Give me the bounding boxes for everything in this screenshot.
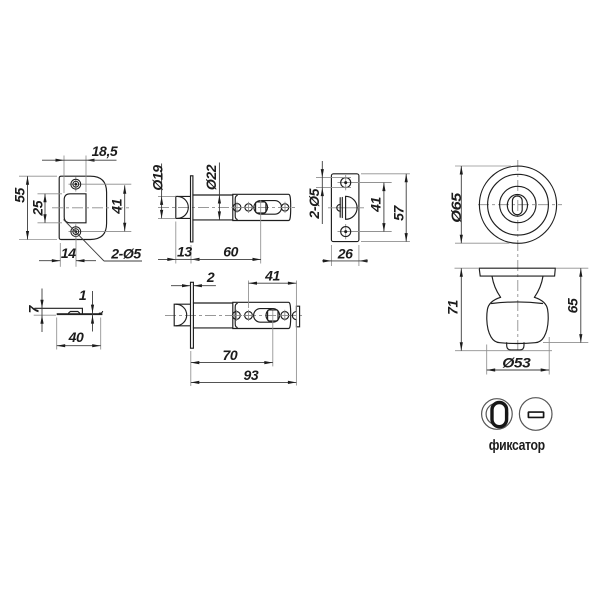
svg-text:Ø65: Ø65 — [448, 193, 464, 223]
svg-text:26: 26 — [337, 246, 353, 262]
svg-text:2: 2 — [206, 269, 215, 285]
svg-text:14: 14 — [61, 245, 76, 261]
svg-text:7: 7 — [26, 304, 42, 313]
svg-text:25: 25 — [29, 200, 45, 216]
svg-text:41: 41 — [109, 198, 125, 214]
svg-text:70: 70 — [223, 347, 238, 363]
svg-text:57: 57 — [390, 205, 406, 221]
svg-text:2-Ø5: 2-Ø5 — [306, 188, 322, 219]
svg-text:41: 41 — [368, 197, 384, 213]
svg-text:65: 65 — [564, 298, 580, 313]
svg-text:Ø22: Ø22 — [203, 164, 219, 190]
svg-text:13: 13 — [177, 244, 192, 260]
svg-text:фиксатор: фиксатор — [489, 438, 545, 454]
svg-text:71: 71 — [445, 300, 461, 315]
svg-text:93: 93 — [244, 367, 259, 383]
svg-text:55: 55 — [12, 188, 28, 203]
svg-text:Ø53: Ø53 — [502, 355, 531, 371]
svg-text:1: 1 — [79, 287, 87, 303]
svg-text:40: 40 — [68, 329, 84, 345]
svg-text:18,5: 18,5 — [92, 143, 118, 159]
svg-text:2-Ø5: 2-Ø5 — [110, 245, 141, 261]
svg-text:Ø19: Ø19 — [149, 165, 165, 191]
svg-text:60: 60 — [223, 243, 238, 259]
svg-text:41: 41 — [264, 268, 280, 284]
